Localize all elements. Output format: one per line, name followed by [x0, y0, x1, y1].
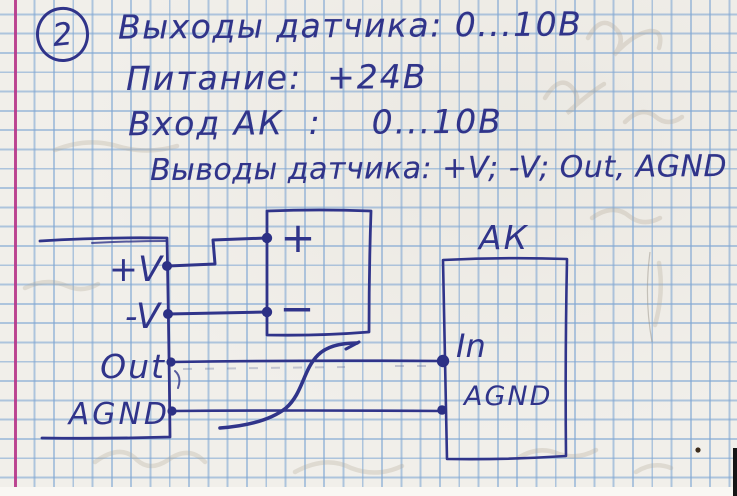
item-number: 2	[51, 16, 74, 54]
pin-dot-out	[166, 357, 175, 366]
pin-dot-vplus	[162, 261, 172, 271]
pencil-hairline-artifact	[647, 252, 652, 342]
wire-vplus-to-supply-plus	[168, 238, 266, 266]
scan-edge-bottom	[0, 487, 737, 496]
wires	[168, 238, 443, 428]
notebook-margin-line	[14, 0, 17, 496]
ak-pin-label-agnd: AGND	[462, 381, 552, 412]
supply-minus-sign: −	[279, 284, 314, 333]
supply-plus-sign: +	[280, 213, 315, 262]
sensor-pin-label-agnd: AGND	[67, 397, 170, 432]
ink-flick-below-out-pin	[175, 371, 179, 388]
wire-agnd-to-agnd	[172, 411, 443, 412]
crossing-s-curve	[220, 343, 357, 428]
sensor-pin-label-vplus: +V	[109, 250, 164, 290]
note-line-sensor-outputs: Выходы датчика: 0...10В	[118, 4, 583, 46]
ak-pin-label-in: In	[456, 327, 486, 365]
wire-out-to-in	[171, 361, 443, 362]
pin-dot-ak-in	[437, 355, 449, 367]
note-line-power-supply: Питание: +24В	[126, 57, 428, 98]
pin-dot-supply-minus	[262, 307, 272, 317]
pin-dot-vminus	[163, 309, 173, 319]
sensor-box-double-stroke	[92, 241, 166, 243]
wire-vminus-to-supply-minus	[168, 312, 266, 314]
scan-edge-black-bar	[733, 448, 737, 496]
pin-dot-ak-agnd	[437, 405, 447, 415]
sensor-pin-label-out: Out	[100, 347, 166, 386]
note-line-ak-input: Вход АК : 0...10В	[128, 102, 503, 144]
ak-box-title: АК	[477, 218, 529, 257]
sensor-pin-label-vminus: -V	[125, 297, 162, 337]
pin-dot-supply-plus	[262, 233, 272, 243]
paper-speck	[695, 447, 700, 452]
note-line-sensor-terminals: Выводы датчика: +V; -V; Out, AGND	[150, 149, 727, 188]
